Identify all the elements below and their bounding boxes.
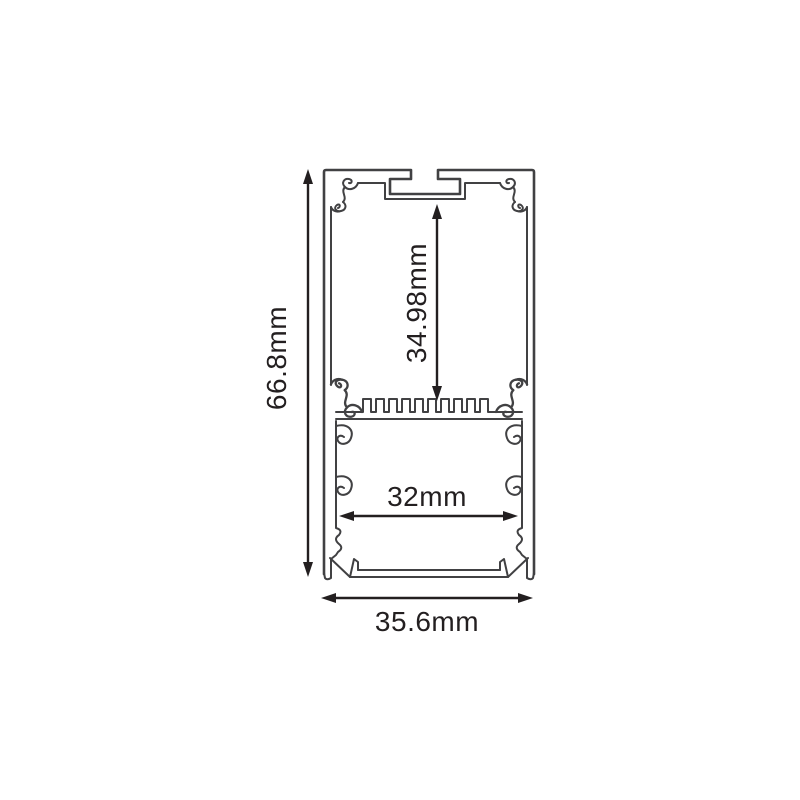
cavity-width-label: 32mm — [357, 482, 497, 512]
arrowhead-left — [339, 511, 354, 521]
arrowhead-up — [303, 169, 313, 184]
screw-boss-top-right — [500, 179, 527, 212]
drawing-canvas: 66.8mm 34.98mm 32mm 35.6mm — [0, 0, 800, 800]
screw-boss-top-left — [331, 179, 358, 212]
arrowhead-left — [321, 593, 336, 603]
dimension-cavity-width — [339, 511, 518, 521]
dimension-overall-height — [303, 169, 313, 577]
inner-ceiling — [358, 183, 500, 199]
profile-cross-section-drawing — [0, 0, 800, 800]
dimension-cavity-height — [432, 204, 442, 401]
arrowhead-down — [303, 562, 313, 577]
dimension-overall-width — [321, 593, 533, 603]
overall-height-label: 66.8mm — [262, 288, 292, 428]
cavity-height-label: 34.98mm — [402, 233, 432, 373]
overall-width-label: 35.6mm — [357, 607, 497, 637]
arrowhead-right — [518, 593, 533, 603]
heatsink-fins — [336, 399, 522, 412]
arrowhead-up — [432, 204, 442, 219]
arrowhead-right — [503, 511, 518, 521]
